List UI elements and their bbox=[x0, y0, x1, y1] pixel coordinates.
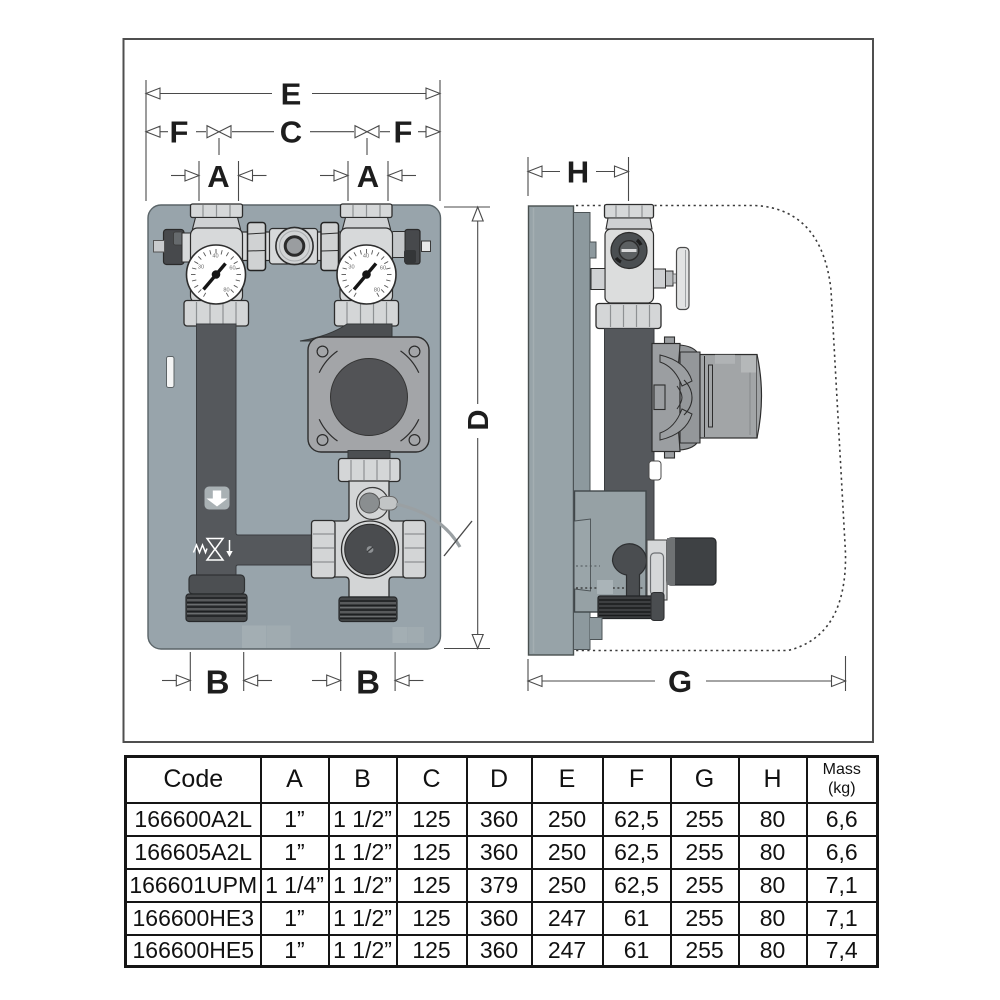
svg-text:E: E bbox=[281, 77, 302, 112]
svg-text:F: F bbox=[170, 115, 189, 150]
svg-text:F: F bbox=[394, 115, 413, 150]
svg-text:30: 30 bbox=[198, 265, 204, 271]
svg-text:30: 30 bbox=[348, 265, 354, 271]
svg-text:80: 80 bbox=[374, 288, 380, 294]
svg-text:60: 60 bbox=[229, 266, 235, 272]
svg-text:B: B bbox=[356, 664, 380, 701]
svg-text:60: 60 bbox=[380, 266, 386, 272]
svg-text:40: 40 bbox=[212, 254, 218, 260]
svg-text:H: H bbox=[567, 155, 589, 190]
svg-text:G: G bbox=[668, 664, 692, 699]
svg-text:D: D bbox=[463, 410, 495, 431]
svg-text:A: A bbox=[207, 159, 229, 194]
svg-text:80: 80 bbox=[223, 288, 229, 294]
svg-text:40: 40 bbox=[363, 254, 369, 260]
svg-text:C: C bbox=[280, 115, 302, 150]
svg-text:B: B bbox=[206, 664, 230, 701]
svg-text:A: A bbox=[357, 159, 379, 194]
